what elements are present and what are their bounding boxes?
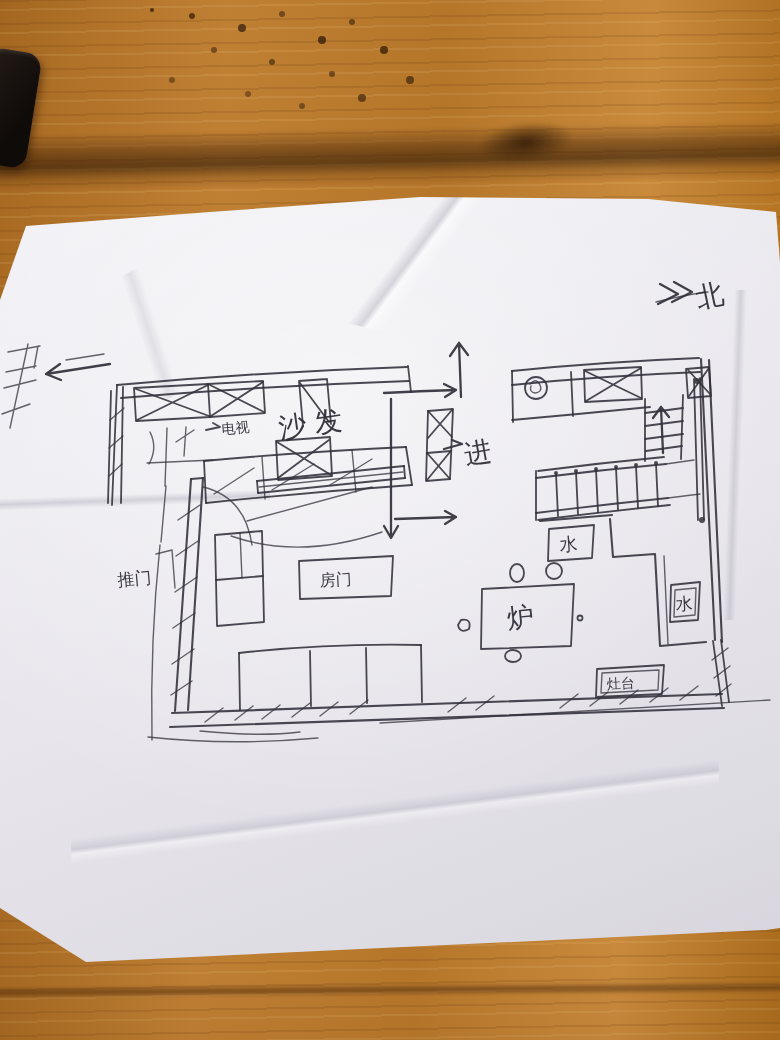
room-door-label: 房门	[319, 569, 352, 590]
coat-rack-scribble	[147, 427, 213, 740]
bottom-bench-sketch	[239, 645, 422, 710]
enter-arrow-icon	[444, 440, 462, 449]
stairs-upper-run	[645, 395, 683, 461]
fire-table-label: 炉	[505, 600, 535, 634]
flow-right-arrow-icon	[395, 511, 456, 524]
photo-of-floor-plan-sketch: 北 电视 沙发 进 推门 房门 水 水 灶台 炉	[0, 0, 780, 1040]
floor-plan-sketch: 北 电视 沙发 进 推门 房门 水 水 灶台 炉	[0, 0, 780, 1040]
water-label: 水	[675, 593, 693, 614]
under-band-scribble	[231, 487, 382, 547]
stove-label: 灶台	[606, 675, 635, 692]
edge-scribble	[2, 344, 40, 428]
enter-label: 进	[462, 435, 494, 470]
side-cabinet-sketch	[215, 531, 264, 626]
stairs-lower-run	[536, 457, 700, 520]
sofa-label: 沙发	[276, 402, 352, 445]
door-arc	[203, 487, 252, 545]
window-topright-icon	[512, 367, 650, 420]
west-arrow-icon	[46, 354, 110, 380]
tv-arrow-icon	[206, 423, 220, 430]
window-left-icon	[134, 381, 265, 421]
duct-column-icon	[426, 409, 453, 481]
entry-right-arrow-icon	[384, 384, 456, 397]
tv-label: 电视	[221, 419, 250, 437]
push-door-label: 推门	[117, 567, 153, 590]
water-tank-label: 水	[559, 533, 578, 555]
north-label: 北	[693, 277, 727, 315]
drain-circle-icon	[525, 377, 547, 399]
